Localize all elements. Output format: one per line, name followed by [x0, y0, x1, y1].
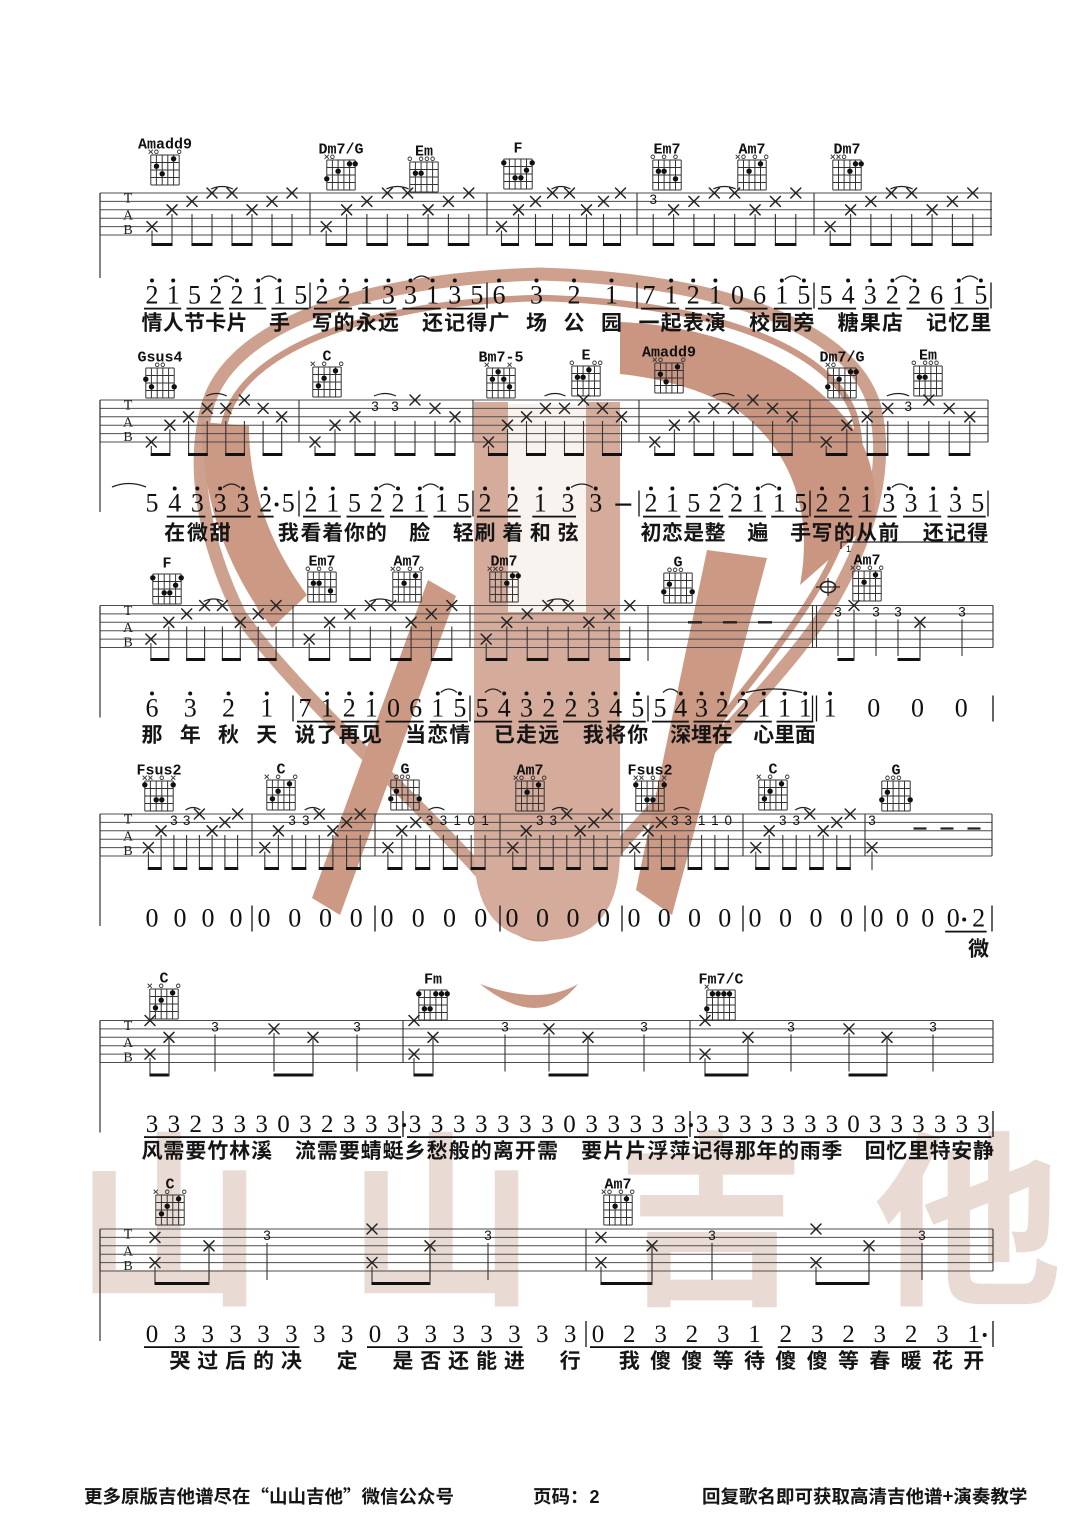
svg-text:C: C — [768, 762, 777, 779]
svg-text:6: 6 — [146, 694, 159, 723]
svg-text:1: 1 — [751, 489, 764, 518]
svg-text:T: T — [124, 604, 133, 619]
svg-text:0: 0 — [810, 904, 823, 933]
svg-text:Em: Em — [415, 144, 433, 161]
svg-text:3: 3 — [371, 399, 379, 414]
svg-text:C: C — [159, 971, 168, 988]
svg-text:5: 5 — [453, 694, 466, 723]
svg-text:3: 3 — [811, 1321, 824, 1348]
svg-text:3: 3 — [918, 1228, 926, 1243]
svg-text:3: 3 — [520, 694, 533, 723]
svg-text:3: 3 — [684, 813, 692, 828]
svg-text:3: 3 — [313, 1321, 326, 1348]
svg-text:2: 2 — [590, 1487, 600, 1507]
svg-text:3: 3 — [536, 1321, 549, 1348]
svg-text:1: 1 — [252, 281, 265, 310]
svg-text:3: 3 — [894, 605, 902, 620]
svg-text:3: 3 — [674, 1111, 687, 1138]
svg-text:0: 0 — [536, 904, 549, 933]
svg-text:T: T — [124, 1019, 133, 1034]
svg-text:1: 1 — [775, 281, 788, 310]
svg-text:3: 3 — [497, 1111, 510, 1138]
svg-text:T: T — [124, 812, 133, 827]
svg-text:3: 3 — [475, 1111, 488, 1138]
svg-text:5: 5 — [476, 694, 489, 723]
svg-text:3: 3 — [382, 281, 395, 310]
svg-text:0: 0 — [506, 904, 519, 933]
svg-text:3: 3 — [977, 1111, 990, 1138]
svg-text:3: 3 — [717, 1321, 730, 1348]
svg-text:2: 2 — [730, 489, 743, 518]
svg-text:G: G — [673, 555, 682, 572]
svg-text:3: 3 — [387, 1111, 400, 1138]
svg-text:0: 0 — [474, 904, 487, 933]
svg-text:0: 0 — [658, 904, 671, 933]
svg-text:3: 3 — [904, 399, 912, 414]
svg-text:3: 3 — [191, 489, 204, 518]
svg-text:3: 3 — [484, 1228, 492, 1243]
svg-text:0: 0 — [412, 904, 425, 933]
svg-text:C: C — [322, 349, 331, 366]
svg-text:3: 3 — [168, 1111, 181, 1138]
svg-text:2: 2 — [321, 1111, 334, 1138]
svg-text:Em: Em — [919, 348, 937, 365]
svg-text:3: 3 — [519, 1111, 532, 1138]
svg-text:3: 3 — [739, 1111, 752, 1138]
svg-text:2: 2 — [542, 694, 555, 723]
svg-text:2: 2 — [259, 489, 272, 518]
svg-text:3: 3 — [869, 1111, 882, 1138]
svg-text:7: 7 — [643, 281, 656, 310]
svg-text:0: 0 — [443, 904, 456, 933]
svg-text:A: A — [123, 415, 134, 430]
svg-text:1: 1 — [757, 694, 770, 723]
svg-text:0: 0 — [202, 904, 215, 933]
svg-text:2: 2 — [716, 694, 729, 723]
svg-text:2: 2 — [370, 489, 383, 518]
svg-text:3: 3 — [905, 489, 918, 518]
svg-text:3: 3 — [183, 813, 191, 828]
svg-text:2: 2 — [623, 1321, 636, 1348]
svg-text:E: E — [581, 348, 590, 365]
svg-text:A: A — [123, 1244, 134, 1259]
svg-text:0: 0 — [592, 1321, 605, 1348]
svg-text:2: 2 — [146, 281, 159, 310]
svg-text:3: 3 — [214, 489, 227, 518]
svg-text:3: 3 — [440, 813, 448, 828]
svg-text:3: 3 — [353, 1020, 361, 1035]
svg-text:3: 3 — [236, 489, 249, 518]
svg-text:2: 2 — [479, 489, 492, 518]
svg-text:Am7: Am7 — [853, 553, 880, 570]
svg-text:6: 6 — [493, 281, 506, 310]
svg-text:1: 1 — [481, 813, 489, 828]
svg-text:3: 3 — [202, 1321, 215, 1348]
svg-text:4: 4 — [609, 694, 622, 723]
svg-text:2: 2 — [886, 281, 899, 310]
svg-text:3: 3 — [882, 489, 895, 518]
svg-text:1: 1 — [778, 694, 791, 723]
svg-text:0: 0 — [174, 904, 187, 933]
svg-text:5: 5 — [687, 489, 700, 518]
svg-text:0: 0 — [369, 1321, 382, 1348]
svg-text:C: C — [165, 1177, 174, 1194]
svg-text:0: 0 — [258, 904, 271, 933]
svg-text:2: 2 — [972, 904, 985, 933]
svg-text:1: 1 — [927, 489, 940, 518]
svg-text:0: 0 — [319, 904, 332, 933]
svg-text:0: 0 — [871, 904, 884, 933]
svg-text:1: 1 — [773, 489, 786, 518]
svg-text:3: 3 — [649, 192, 657, 207]
svg-text:1: 1 — [365, 694, 378, 723]
svg-text:0: 0 — [146, 904, 159, 933]
svg-text:3: 3 — [212, 1111, 225, 1138]
svg-text:3: 3 — [288, 813, 296, 828]
svg-text:3: 3 — [480, 1321, 493, 1348]
svg-text:Em7: Em7 — [653, 142, 680, 159]
svg-text:3: 3 — [391, 399, 399, 414]
svg-text:A: A — [123, 621, 134, 636]
svg-text:B: B — [123, 430, 132, 445]
svg-text:1: 1 — [665, 281, 678, 310]
svg-text:3: 3 — [426, 813, 434, 828]
svg-text:3: 3 — [671, 813, 679, 828]
svg-text:3: 3 — [299, 1111, 312, 1138]
svg-text:2: 2 — [506, 489, 519, 518]
svg-text:3: 3 — [211, 1020, 219, 1035]
svg-text:5: 5 — [654, 694, 667, 723]
svg-text:3: 3 — [717, 1111, 730, 1138]
svg-text:Fm: Fm — [424, 972, 442, 989]
svg-text:3: 3 — [782, 1111, 795, 1138]
svg-text:2: 2 — [645, 489, 658, 518]
svg-text:2: 2 — [316, 281, 329, 310]
svg-text:2: 2 — [231, 281, 244, 310]
svg-text:5: 5 — [282, 489, 295, 518]
svg-text:3: 3 — [874, 1321, 887, 1348]
svg-text:0: 0 — [230, 904, 243, 933]
svg-text:3: 3 — [184, 694, 197, 723]
svg-text:1: 1 — [799, 694, 812, 723]
svg-text:4: 4 — [842, 281, 855, 310]
svg-text:3: 3 — [541, 1111, 554, 1138]
svg-text:3: 3 — [587, 694, 600, 723]
svg-text:3: 3 — [891, 1111, 904, 1138]
svg-text:6: 6 — [753, 281, 766, 310]
svg-text:2: 2 — [392, 489, 405, 518]
svg-text:1: 1 — [698, 813, 706, 828]
svg-text:3: 3 — [868, 813, 876, 828]
svg-text:0: 0 — [867, 694, 880, 723]
svg-text:3: 3 — [929, 1020, 937, 1035]
svg-text:T: T — [124, 1227, 133, 1242]
svg-text:5: 5 — [974, 281, 987, 310]
svg-text:3: 3 — [174, 1321, 187, 1348]
svg-text:3: 3 — [229, 1321, 242, 1348]
svg-text:3: 3 — [302, 813, 310, 828]
svg-text:1: 1 — [167, 281, 180, 310]
svg-text:3: 3 — [589, 489, 602, 518]
svg-text:0: 0 — [955, 694, 968, 723]
svg-text:0: 0 — [467, 813, 475, 828]
svg-text:Am7: Am7 — [516, 763, 543, 780]
svg-text:3: 3 — [864, 281, 877, 310]
svg-text:Gsus4: Gsus4 — [137, 350, 182, 367]
svg-text:G: G — [400, 762, 409, 779]
svg-text:5: 5 — [971, 489, 984, 518]
svg-text:1: 1 — [435, 489, 448, 518]
svg-text:4: 4 — [498, 694, 511, 723]
svg-text:1: 1 — [824, 694, 837, 723]
svg-text:3: 3 — [936, 1321, 949, 1348]
svg-text:1: 1 — [846, 544, 851, 554]
svg-text:3: 3 — [585, 1111, 598, 1138]
svg-text:3: 3 — [872, 605, 880, 620]
svg-text:3: 3 — [834, 605, 842, 620]
svg-text:0: 0 — [567, 904, 580, 933]
svg-text:A: A — [123, 829, 134, 844]
svg-text:6: 6 — [409, 694, 422, 723]
svg-text:1: 1 — [605, 281, 618, 310]
svg-text:3: 3 — [536, 813, 544, 828]
svg-text:1: 1 — [454, 813, 462, 828]
svg-text:2: 2 — [222, 694, 235, 723]
svg-text:6: 6 — [930, 281, 943, 310]
svg-text:3: 3 — [425, 1321, 438, 1348]
svg-text:G: G — [891, 763, 900, 780]
svg-text:T: T — [124, 191, 133, 206]
svg-text:1: 1 — [431, 694, 444, 723]
svg-text:1: 1 — [967, 1321, 980, 1348]
svg-text:3: 3 — [341, 1321, 354, 1348]
svg-text:2: 2 — [568, 281, 581, 310]
svg-text:0: 0 — [921, 904, 934, 933]
svg-text:5: 5 — [797, 281, 810, 310]
svg-text:7: 7 — [299, 694, 312, 723]
svg-text:2: 2 — [338, 281, 351, 310]
svg-text:Am7: Am7 — [393, 554, 420, 571]
svg-text:3: 3 — [448, 281, 461, 310]
svg-text:0: 0 — [725, 813, 733, 828]
svg-text:2: 2 — [905, 1321, 918, 1348]
svg-text:1: 1 — [273, 281, 286, 310]
svg-text:Fsus2: Fsus2 — [627, 763, 672, 780]
svg-text:3: 3 — [779, 813, 787, 828]
svg-text:1: 1 — [326, 489, 339, 518]
svg-text:4: 4 — [674, 694, 687, 723]
svg-text:3: 3 — [958, 605, 966, 620]
svg-text:0: 0 — [718, 904, 731, 933]
svg-text:A: A — [123, 208, 134, 223]
svg-text:2: 2 — [565, 694, 578, 723]
svg-text:Fm7/C: Fm7/C — [698, 972, 743, 989]
svg-text:2: 2 — [737, 694, 750, 723]
svg-text:0: 0 — [597, 904, 610, 933]
svg-text:T: T — [124, 398, 133, 413]
svg-text:2: 2 — [190, 1111, 203, 1138]
svg-text:1: 1 — [360, 281, 373, 310]
svg-text:B: B — [123, 1050, 132, 1065]
svg-text:0: 0 — [387, 694, 400, 723]
svg-text:3: 3 — [912, 1111, 925, 1138]
svg-text:0: 0 — [277, 1111, 290, 1138]
svg-text:1: 1 — [952, 281, 965, 310]
svg-text:5: 5 — [188, 281, 201, 310]
svg-text:0: 0 — [947, 904, 960, 933]
svg-text:F: F — [513, 141, 522, 158]
svg-text:3: 3 — [409, 1111, 422, 1138]
svg-text:3: 3 — [146, 1111, 159, 1138]
svg-text:Amadd9: Amadd9 — [642, 345, 696, 362]
svg-text:3: 3 — [431, 1111, 444, 1138]
svg-text:3: 3 — [397, 1321, 410, 1348]
svg-text:3: 3 — [934, 1111, 947, 1138]
svg-text:3: 3 — [343, 1111, 356, 1138]
svg-text:5: 5 — [794, 489, 807, 518]
svg-text:3: 3 — [562, 489, 575, 518]
svg-text:5: 5 — [146, 489, 159, 518]
svg-text:2: 2 — [209, 281, 222, 310]
svg-text:1: 1 — [426, 281, 439, 310]
svg-text:3: 3 — [696, 1111, 709, 1138]
svg-text:3: 3 — [365, 1111, 378, 1138]
svg-text:3: 3 — [695, 694, 708, 723]
svg-text:1: 1 — [260, 694, 273, 723]
svg-text:5: 5 — [820, 281, 833, 310]
svg-text:0: 0 — [350, 904, 363, 933]
svg-text:2: 2 — [780, 1321, 793, 1348]
svg-text:3: 3 — [826, 1111, 839, 1138]
svg-text:2: 2 — [686, 1321, 699, 1348]
svg-text:0: 0 — [288, 904, 301, 933]
svg-text:2: 2 — [908, 281, 921, 310]
svg-text:3: 3 — [453, 1111, 466, 1138]
svg-text:2: 2 — [709, 489, 722, 518]
svg-text:3: 3 — [564, 1321, 577, 1348]
svg-text:3: 3 — [640, 1020, 648, 1035]
svg-text:3: 3 — [949, 489, 962, 518]
svg-text:0: 0 — [731, 281, 744, 310]
svg-text:1: 1 — [711, 813, 719, 828]
svg-text:3: 3 — [530, 281, 543, 310]
svg-text:0: 0 — [563, 1111, 576, 1138]
svg-text:3: 3 — [263, 1228, 271, 1243]
svg-text:2: 2 — [687, 281, 700, 310]
svg-text:1: 1 — [709, 281, 722, 310]
svg-text:Am7: Am7 — [738, 142, 765, 159]
svg-text:B: B — [123, 844, 132, 859]
svg-text:2: 2 — [305, 489, 318, 518]
svg-text:B: B — [123, 223, 132, 238]
svg-text:3: 3 — [652, 1111, 665, 1138]
svg-text:3: 3 — [233, 1111, 246, 1138]
svg-text:0: 0 — [749, 904, 762, 933]
svg-text:3: 3 — [452, 1321, 465, 1348]
svg-text:0: 0 — [146, 1321, 159, 1348]
svg-text:3: 3 — [508, 1321, 521, 1348]
svg-text:3: 3 — [404, 281, 417, 310]
svg-text:1: 1 — [413, 489, 426, 518]
svg-text:3: 3 — [761, 1111, 774, 1138]
svg-text:0: 0 — [628, 904, 641, 933]
svg-text:1: 1 — [860, 489, 873, 518]
svg-text:Am7: Am7 — [604, 1177, 631, 1194]
svg-text:Dm7/G: Dm7/G — [819, 350, 864, 367]
svg-text:3: 3 — [804, 1111, 817, 1138]
svg-text:3: 3 — [255, 1111, 268, 1138]
svg-text:3: 3 — [708, 1228, 716, 1243]
svg-text:3: 3 — [170, 813, 178, 828]
svg-text:F: F — [162, 556, 171, 573]
svg-text:0: 0 — [896, 904, 909, 933]
svg-text:3: 3 — [630, 1111, 643, 1138]
svg-text:2: 2 — [343, 694, 356, 723]
svg-text:3: 3 — [787, 1020, 795, 1035]
svg-text:0: 0 — [840, 904, 853, 933]
svg-text:1: 1 — [534, 489, 547, 518]
svg-text:3: 3 — [792, 813, 800, 828]
svg-text:3: 3 — [955, 1111, 968, 1138]
svg-text:0: 0 — [779, 904, 792, 933]
svg-text:2: 2 — [816, 489, 829, 518]
svg-text:2: 2 — [842, 1321, 855, 1348]
svg-text:0: 0 — [847, 1111, 860, 1138]
svg-text:B: B — [123, 635, 132, 650]
svg-text:1: 1 — [748, 1321, 761, 1348]
svg-text:0: 0 — [381, 904, 394, 933]
svg-text:3: 3 — [654, 1321, 667, 1348]
svg-text:3: 3 — [549, 813, 557, 828]
svg-text:5: 5 — [457, 489, 470, 518]
svg-text:5: 5 — [294, 281, 307, 310]
svg-text:3: 3 — [285, 1321, 298, 1348]
svg-text:C: C — [276, 762, 285, 779]
svg-text:2: 2 — [838, 489, 851, 518]
svg-text:A: A — [123, 1036, 134, 1051]
svg-text:5: 5 — [348, 489, 361, 518]
svg-text:3: 3 — [257, 1321, 270, 1348]
svg-text:Amadd9: Amadd9 — [138, 137, 192, 154]
svg-text:5: 5 — [631, 694, 644, 723]
svg-text:Em7: Em7 — [308, 554, 335, 571]
svg-text:1: 1 — [666, 489, 679, 518]
svg-text:5: 5 — [470, 281, 483, 310]
svg-text:0: 0 — [688, 904, 701, 933]
svg-text:3: 3 — [607, 1111, 620, 1138]
svg-text:B: B — [123, 1259, 132, 1274]
svg-text:3: 3 — [501, 1020, 509, 1035]
svg-text:4: 4 — [168, 489, 181, 518]
svg-text:0: 0 — [911, 694, 924, 723]
svg-text:1: 1 — [321, 694, 334, 723]
